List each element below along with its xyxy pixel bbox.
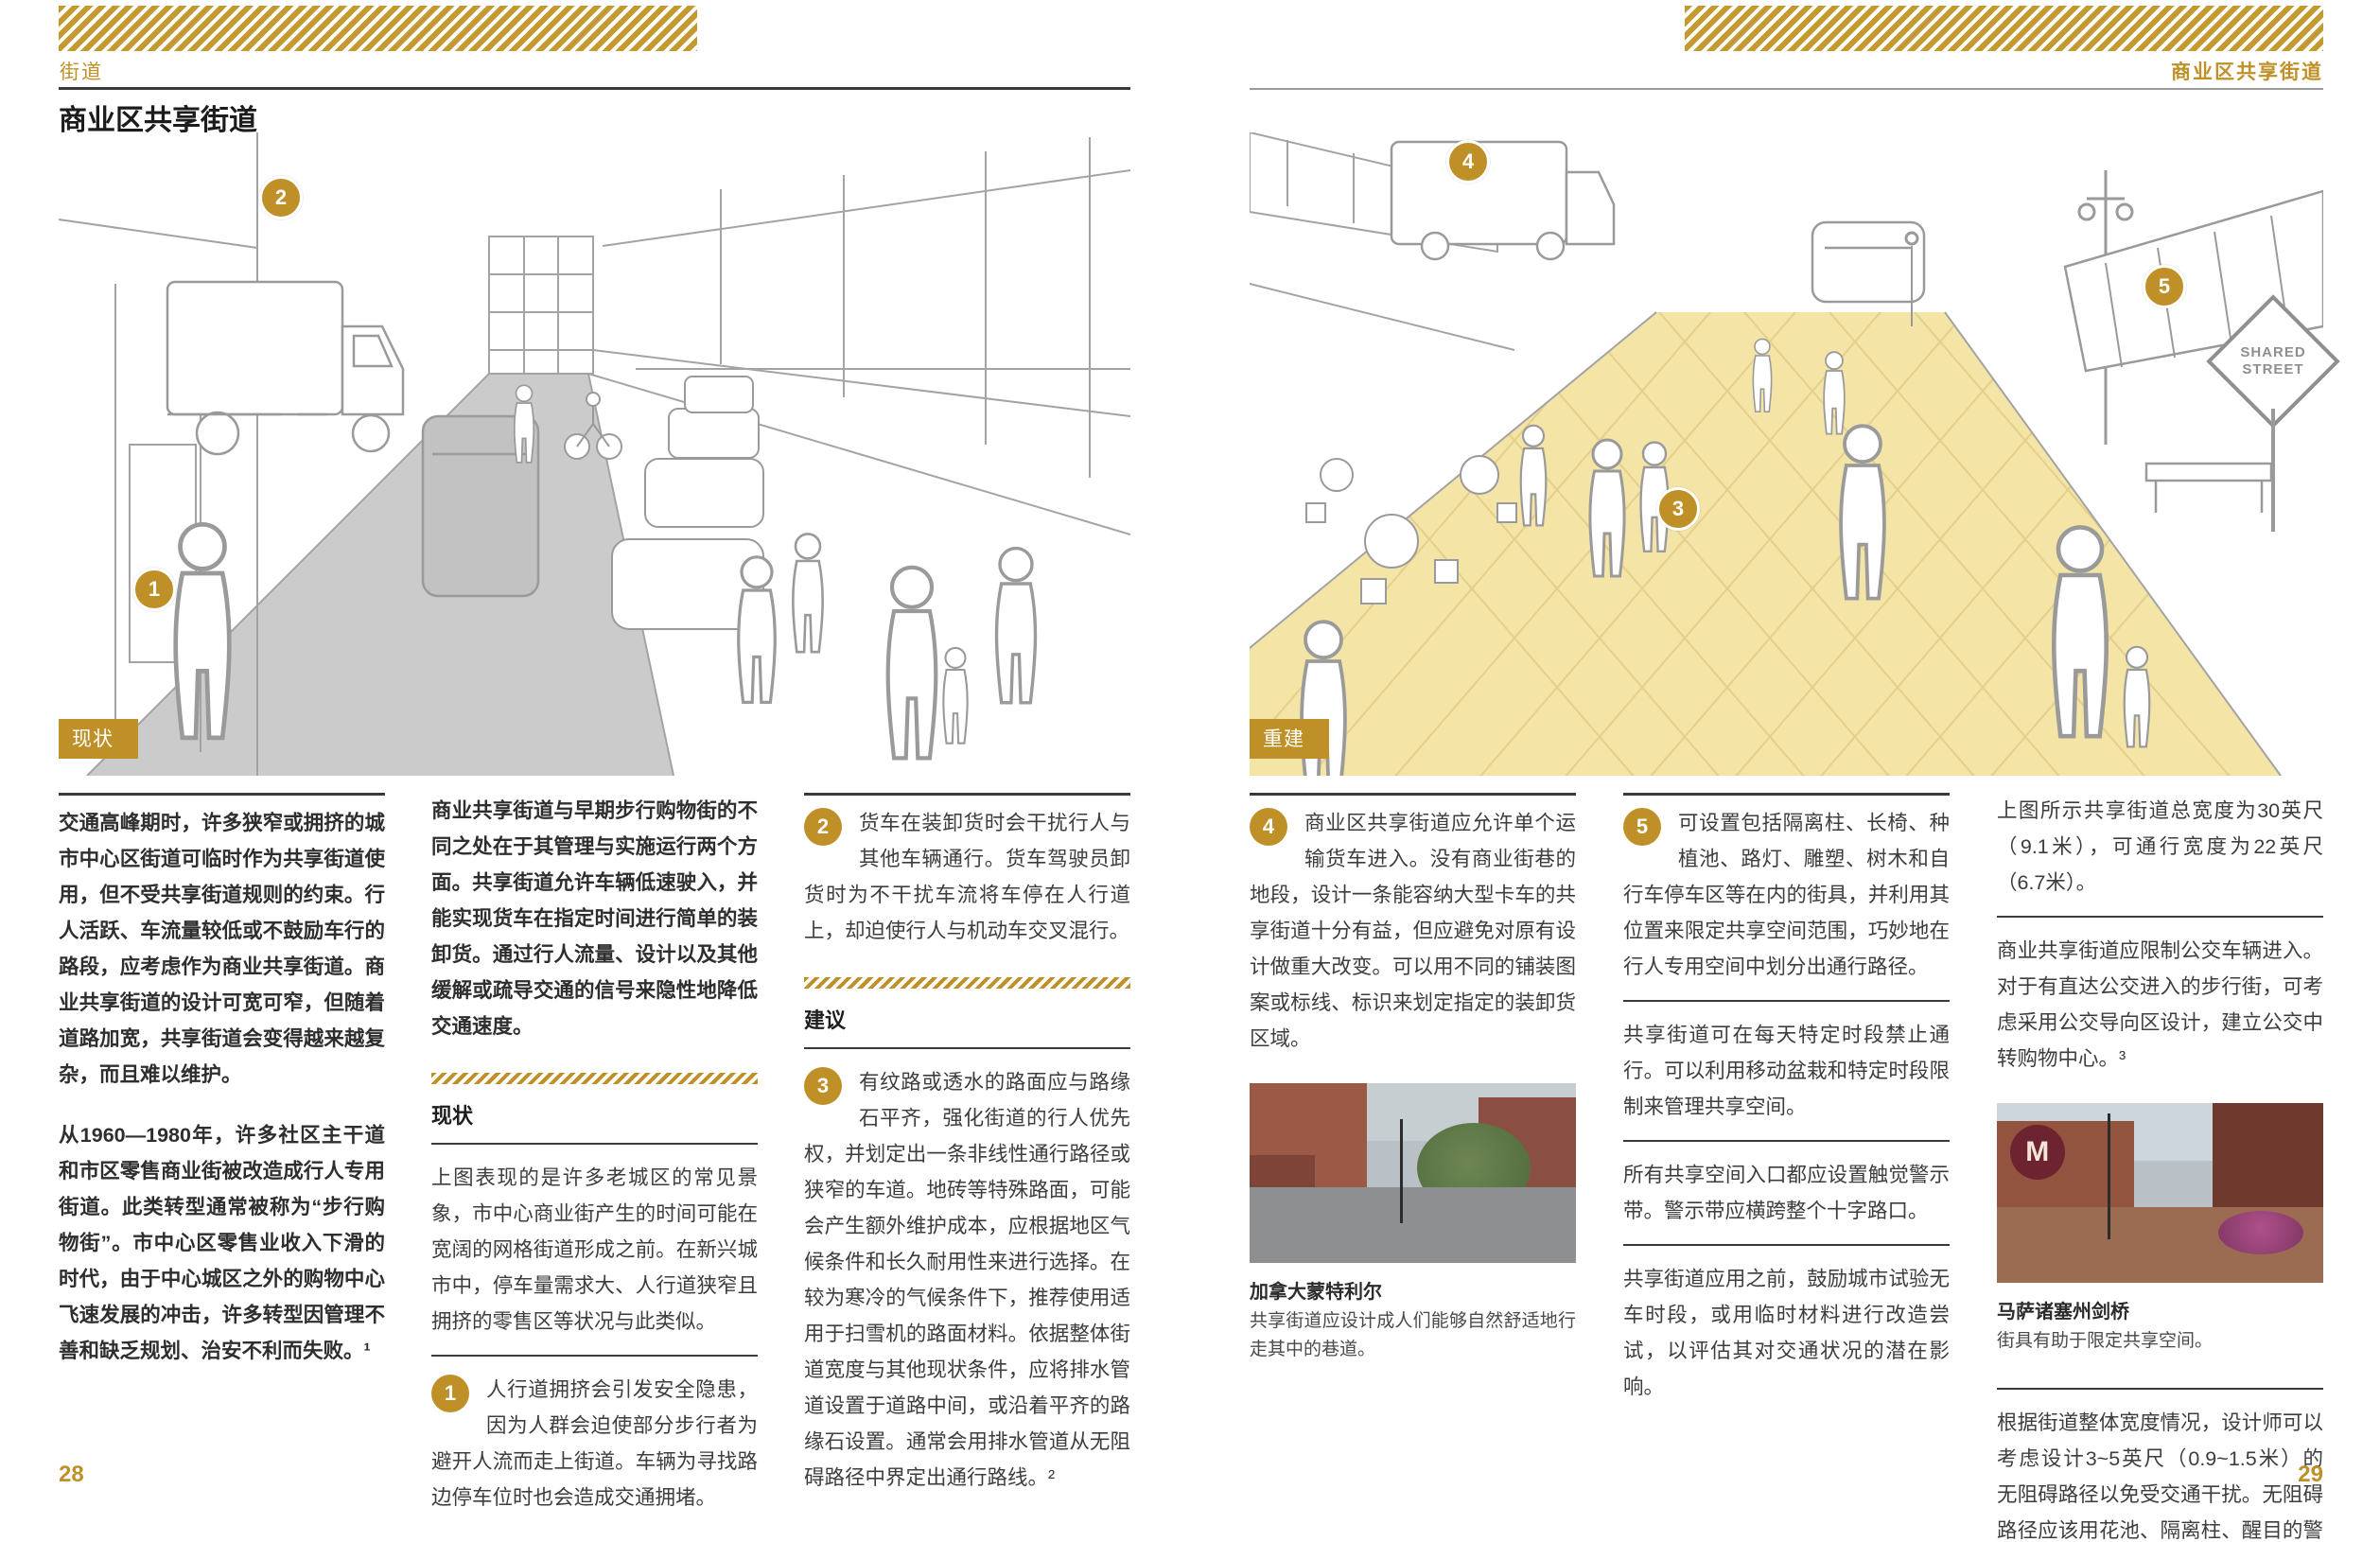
photo1-caption-title: 加拿大蒙特利尔 — [1250, 1276, 1576, 1304]
book-spread: 街道 商业区共享街道 — [0, 0, 2380, 1542]
section-divider — [804, 977, 1130, 989]
left-col-2: 商业共享街道与早期步行购物街的不同之处在于其管理与实施运行两个方面。共享街道允许… — [431, 793, 758, 1516]
photo-montreal — [1250, 1083, 1576, 1263]
sign-post — [2271, 409, 2275, 532]
intro-paragraph-1: 交通高峰期时，许多狭窄或拥挤的城市中心区街道可临时作为共享街道使用，但不受共享街… — [59, 805, 385, 1093]
item-badge-2: 2 — [804, 808, 842, 846]
right-col-1: 4商业区共享街道应允许单个运输货车进入。没有商业街巷的地段，设计一条能容纳大型卡… — [1250, 793, 1576, 1542]
numbered-item-5: 5可设置包括隔离柱、长椅、种植池、路灯、雕塑、树木和自行车停车区等在内的街具，并… — [1623, 805, 1950, 985]
separator-rule — [431, 1355, 758, 1357]
item-text-2: 货车在装卸货时会干扰行人与其他车辆通行。货车驾驶员卸货时为不干扰车流将车停在人行… — [804, 812, 1130, 942]
illustration-label-existing: 现状 — [59, 719, 138, 759]
intro-paragraph-2: 从1960—1980年，许多社区主干道和市区零售商业街被改造成行人专用街道。此类… — [59, 1117, 385, 1369]
item-badge-3: 3 — [804, 1067, 842, 1105]
right-col-3: 上图所示共享街道总宽度为30英尺（9.1米），可通行宽度为22英尺（6.7米）。… — [1997, 793, 2323, 1542]
heading-recommendations: 建议 — [804, 1004, 1130, 1034]
right-page-columns: 4商业区共享街道应允许单个运输货车进入。没有商业街巷的地段，设计一条能容纳大型卡… — [1250, 793, 2323, 1542]
item-text-1: 人行道拥挤会引发安全隐患，因为人群会迫使部分步行者为避开人流而走上街道。车辆为寻… — [431, 1378, 758, 1509]
callout-marker-3: 3 — [1656, 487, 1700, 531]
street-sketch-redesign — [1250, 132, 2323, 776]
hatch-bar-right — [1685, 6, 2323, 51]
separator-rule — [1623, 1000, 1950, 1002]
sign-line-2: STREET — [2242, 361, 2303, 378]
shared-street-sign: SHARED STREET — [2226, 314, 2320, 409]
item-badge-1: 1 — [431, 1375, 469, 1412]
separator-rule — [431, 1143, 758, 1145]
sign-line-1: SHARED — [2240, 344, 2305, 361]
callout-marker-4: 4 — [1446, 140, 1490, 184]
separator-rule — [1623, 1140, 1950, 1142]
photo-cambridge: M — [1997, 1103, 2323, 1283]
photo-lamppost — [1400, 1119, 1403, 1223]
illustration-label-redesign: 重建 — [1250, 719, 1329, 759]
left-page-columns: 交通高峰期时，许多狭窄或拥挤的城市中心区街道可临时作为共享街道使用，但不受共享街… — [59, 793, 1130, 1516]
section-divider — [431, 1073, 758, 1084]
title-rule-left — [59, 87, 1130, 90]
shared-street-sign-text: SHARED STREET — [2226, 314, 2320, 409]
callout-marker-2: 2 — [259, 176, 303, 219]
section-eyebrow-left: 街道 — [60, 57, 103, 85]
width-note-paragraph: 上图所示共享街道总宽度为30英尺（9.1米），可通行宽度为22英尺（6.7米）。 — [1997, 793, 2323, 901]
storefront-sign-letter: M — [2025, 1136, 2049, 1168]
page-number-right: 29 — [1250, 1462, 2323, 1488]
management-paragraph-3: 共享街道应用之前，鼓励城市试验无车时段，或用临时材料进行改造尝试，以评估其对交通… — [1623, 1261, 1950, 1405]
column-rule — [1250, 793, 1576, 796]
heading-existing: 现状 — [431, 1099, 758, 1130]
management-paragraph-1: 共享街道可在每天特定时段禁止通行。可以利用移动盆栽和特定时段限制来管理共享空间。 — [1623, 1017, 1950, 1125]
item-badge-4: 4 — [1250, 808, 1287, 846]
photo1-caption-body: 共享街道应设计成人们能够自然舒适地行走其中的巷道。 — [1250, 1307, 1576, 1364]
separator-rule — [1997, 916, 2323, 918]
page-number-left: 28 — [59, 1462, 84, 1488]
illustration-existing-conditions: 1 2 现状 — [59, 132, 1130, 776]
numbered-item-2: 2货车在装卸货时会干扰行人与其他车辆通行。货车驾驶员卸货时为不干扰车流将车停在人… — [804, 805, 1130, 949]
section-eyebrow-right: 商业区共享街道 — [1250, 57, 2323, 85]
intro-paragraph-3: 商业共享街道与早期步行购物街的不同之处在于其管理与实施运行两个方面。共享街道允许… — [431, 793, 758, 1044]
item-text-3: 有纹路或透水的路面应与路缘石平齐，强化街道的行人优先权，并划定出一条非线性通行路… — [804, 1071, 1130, 1489]
street-sketch-existing — [59, 132, 1130, 776]
separator-rule — [1997, 1388, 2323, 1390]
left-col-1: 交通高峰期时，许多狭窄或拥挤的城市中心区街道可临时作为共享街道使用，但不受共享街… — [59, 793, 385, 1516]
item-badge-5: 5 — [1623, 808, 1661, 846]
item-text-4: 商业区共享街道应允许单个运输货车进入。没有商业街巷的地段，设计一条能容纳大型卡车… — [1250, 812, 1576, 1050]
numbered-item-4: 4商业区共享街道应允许单个运输货车进入。没有商业街巷的地段，设计一条能容纳大型卡… — [1250, 805, 1576, 1057]
photo-flowers — [2218, 1211, 2303, 1254]
callout-marker-1: 1 — [132, 568, 176, 611]
management-paragraph-2: 所有共享空间入口都应设置触觉警示带。警示带应横跨整个十字路口。 — [1623, 1157, 1950, 1229]
column-rule — [1623, 793, 1950, 796]
existing-paragraph: 上图表现的是许多老城区的常见景象，市中心商业街产生的时间可能在宽阔的网格街道形成… — [431, 1160, 758, 1340]
numbered-item-3: 3有纹路或透水的路面应与路缘石平齐，强化街道的行人优先权，并划定出一条非线性通行… — [804, 1064, 1130, 1496]
photo2-caption-body: 街具有助于限定共享空间。 — [1997, 1327, 2323, 1356]
right-col-2: 5可设置包括隔离柱、长椅、种植池、路灯、雕塑、树木和自行车停车区等在内的街具，并… — [1623, 793, 1950, 1542]
storefront-round-sign: M — [2010, 1125, 2065, 1180]
photo-lamppost — [2108, 1113, 2110, 1239]
column-rule — [59, 793, 385, 796]
callout-marker-5: 5 — [2143, 265, 2186, 308]
transit-paragraph: 商业共享街道应限制公交车辆进入。对于有直达公交进入的步行街，可考虑采用公交导向区… — [1997, 933, 2323, 1077]
separator-rule — [804, 1047, 1130, 1049]
separator-rule — [1623, 1244, 1950, 1246]
numbered-item-1: 1人行道拥挤会引发安全隐患，因为人群会迫使部分步行者为避开人流而走上街道。车辆为… — [431, 1372, 758, 1516]
hatch-bar-left — [59, 6, 697, 51]
item-text-5: 可设置包括隔离柱、长椅、种植池、路灯、雕塑、树木和自行车停车区等在内的街具，并利… — [1623, 812, 1950, 978]
photo-street — [1250, 1187, 1576, 1263]
photo2-caption-title: 马萨诸塞州剑桥 — [1997, 1296, 2323, 1323]
left-col-3: 2货车在装卸货时会干扰行人与其他车辆通行。货车驾驶员卸货时为不干扰车流将车停在人… — [804, 793, 1130, 1516]
illustration-redesign: SHARED STREET 3 4 5 重建 — [1250, 132, 2323, 776]
title-rule-right — [1250, 88, 2323, 90]
column-rule — [804, 793, 1130, 796]
